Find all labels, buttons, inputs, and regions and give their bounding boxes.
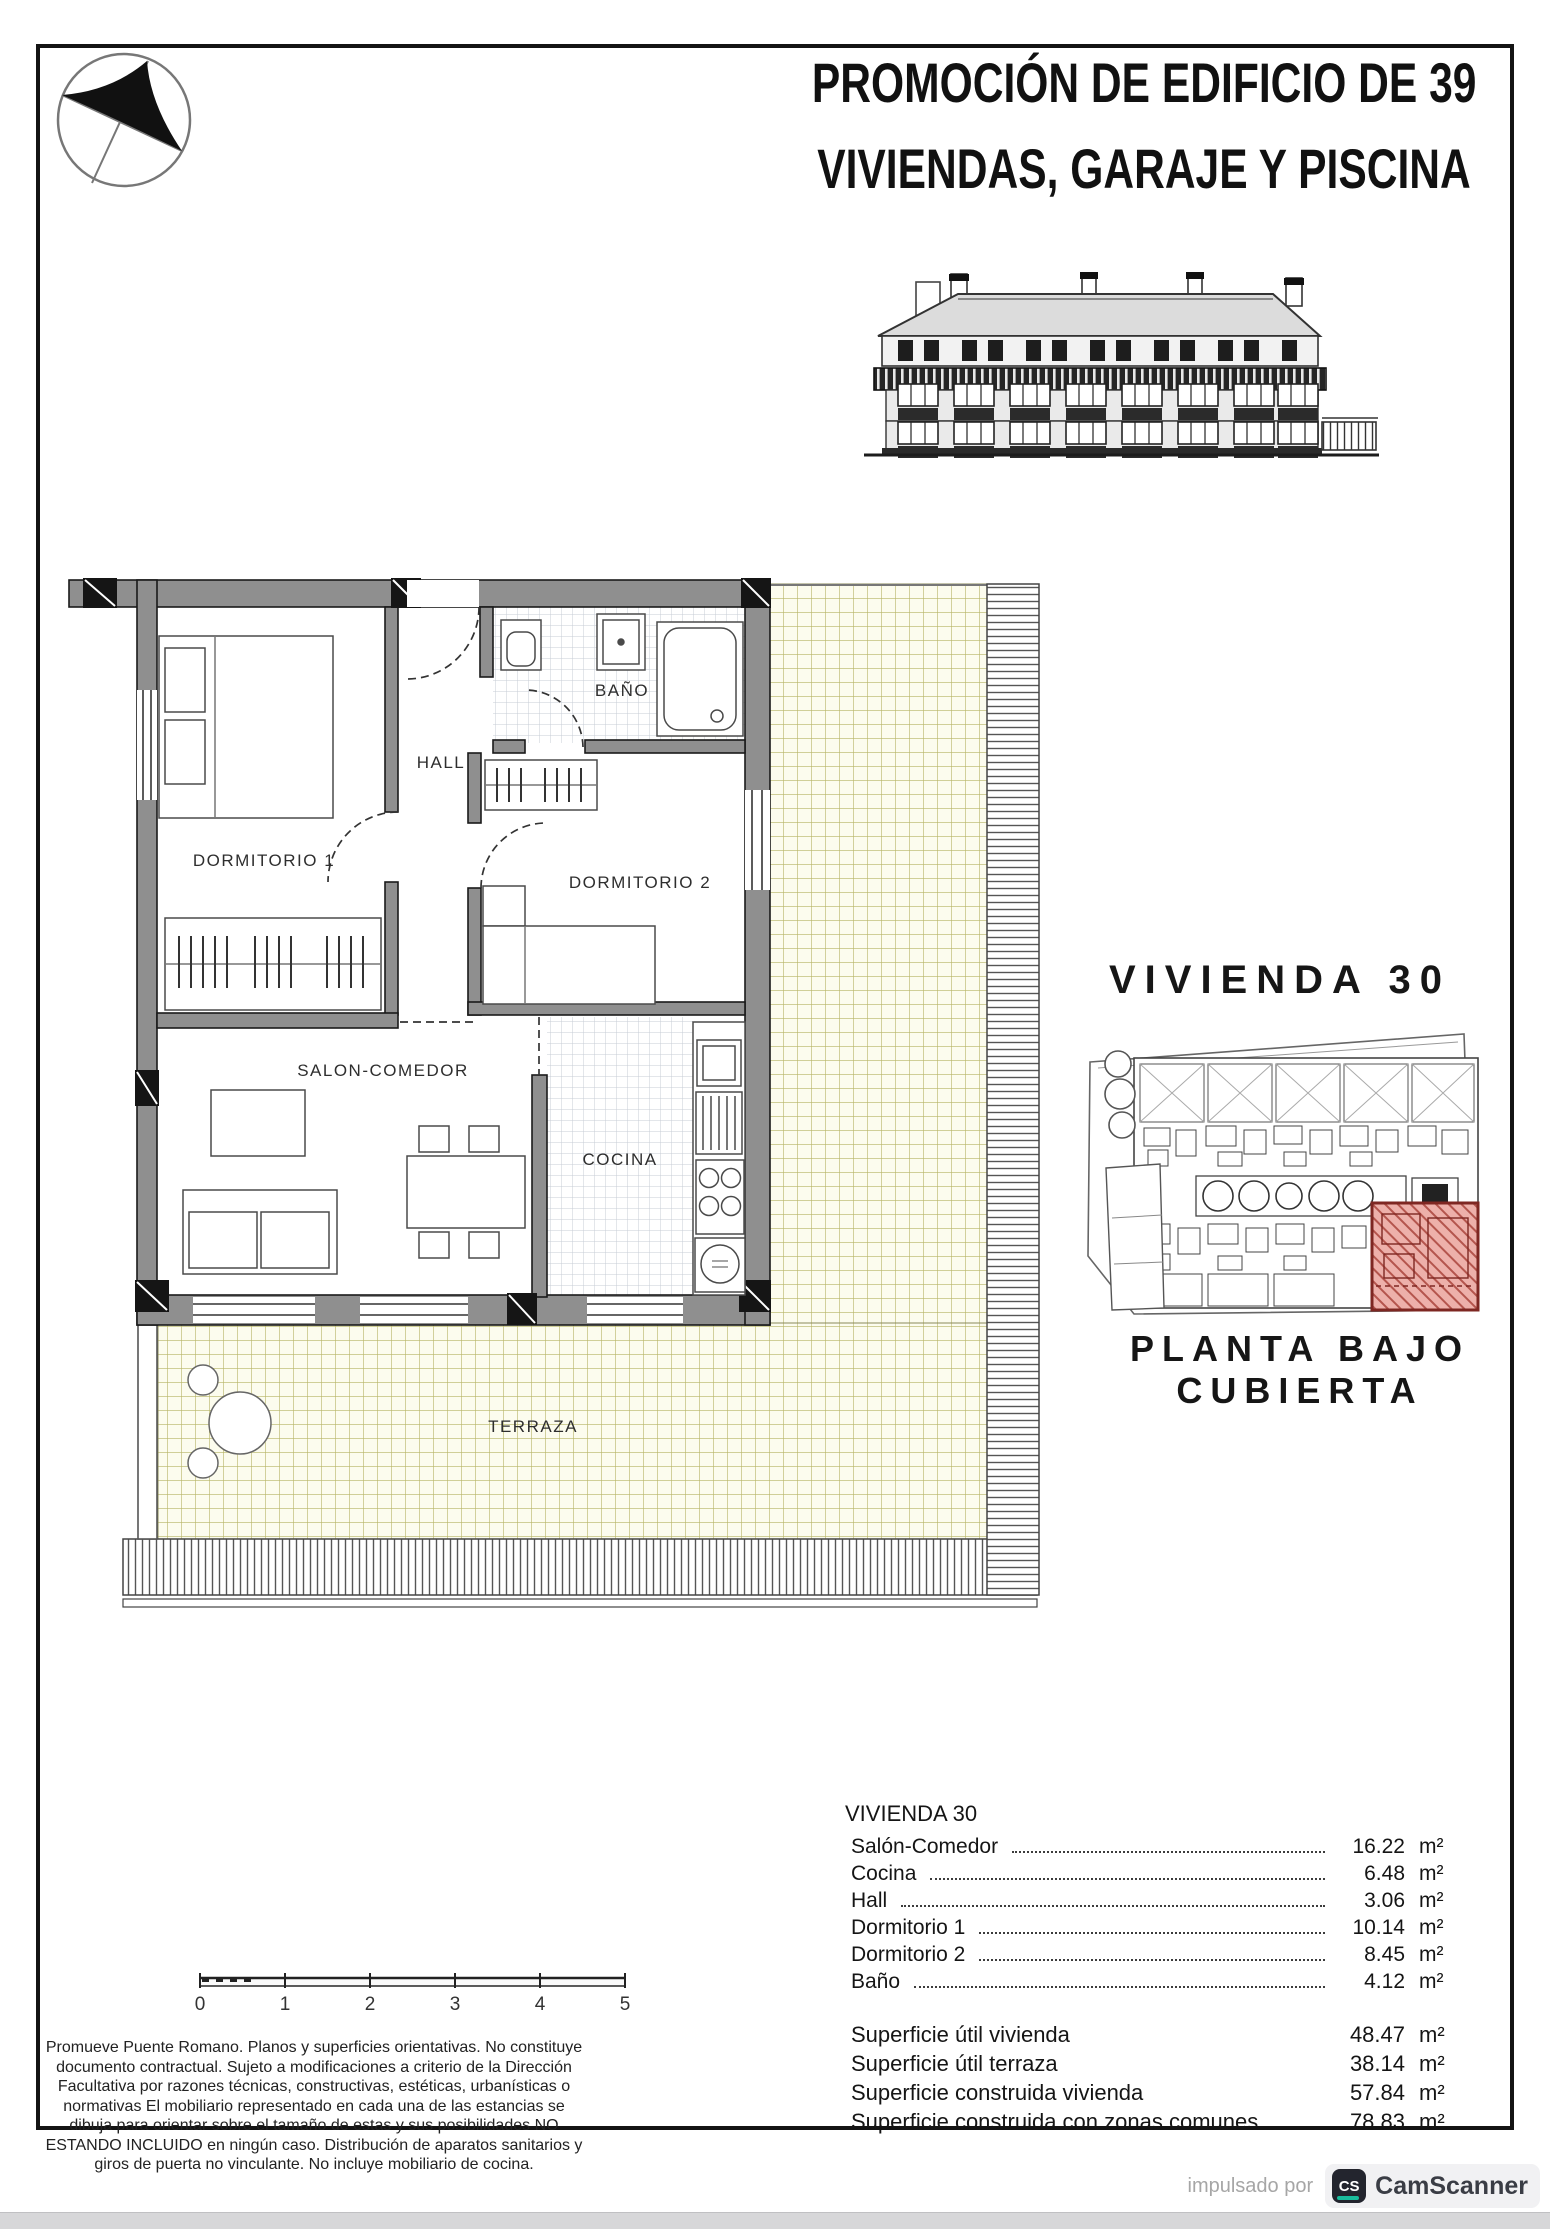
scale-tick-1: 1: [280, 1994, 291, 2015]
summary-row: Superficie útil terraza 38.14 m²: [845, 2048, 1477, 2077]
bed-double: [159, 636, 333, 818]
toilet: [501, 620, 541, 670]
label-cocina: COCINA: [582, 1150, 657, 1169]
title-line-2: VIVIENDAS, GARAJE Y PISCINA: [817, 126, 1471, 212]
table-row: Baño 4.12 m²: [845, 1968, 1477, 1995]
site-plan: [1078, 1018, 1518, 1318]
table-row: Cocina 6.48 m²: [845, 1860, 1477, 1887]
label-terraza: TERRAZA: [488, 1417, 578, 1436]
kitchen-counter: [693, 1022, 745, 1295]
terrace-parapet: [138, 1323, 157, 1539]
table-row: Dormitorio 2 8.45 m²: [845, 1941, 1477, 1968]
summary-row: Superficie útil vivienda 48.47 m²: [845, 2019, 1477, 2048]
sink: [597, 614, 645, 670]
label-dormitorio1: DORMITORIO 1: [193, 851, 335, 870]
sofa: [183, 1190, 337, 1274]
scale-tick-4: 4: [535, 1994, 546, 2015]
floor-plan: DORMITORIO 1 HALL BAÑO DORMITORIO 2 SALO…: [55, 570, 1045, 1670]
bottom-strip: [0, 2212, 1550, 2229]
table-row: Hall 3.06 m²: [845, 1887, 1477, 1914]
unit-title: VIVIENDA 30: [1080, 958, 1480, 1003]
terrace-louvre-right: [987, 584, 1039, 1595]
scale-bar: 0 1 2 3 4 5: [186, 1966, 656, 2026]
coffee-table: [211, 1090, 305, 1156]
label-bano: BAÑO: [595, 681, 649, 700]
bathtub: [657, 622, 743, 736]
scale-tick-0: 0: [195, 1994, 206, 2015]
label-hall: HALL: [417, 753, 466, 772]
scale-tick-5: 5: [620, 1994, 631, 2015]
floor-caption-line-2: CUBIERTA: [1078, 1370, 1522, 1412]
area-summary: Superficie útil vivienda 48.47 m² Superf…: [845, 2019, 1477, 2135]
summary-row: Superficie construida con zonas comunes …: [845, 2106, 1477, 2135]
closet: [485, 760, 597, 810]
watermark-prefix: impulsado por: [1188, 2175, 1314, 2198]
highlighted-unit: [1372, 1203, 1478, 1310]
building-elevation-drawing: [858, 272, 1383, 472]
table-row: Dormitorio 1 10.14 m²: [845, 1914, 1477, 1941]
camscanner-watermark: impulsado por CS CamScanner: [1150, 2162, 1540, 2210]
area-table: VIVIENDA 30 Salón-Comedor 16.22 m² Cocin…: [845, 1800, 1477, 2135]
table-row: Salón-Comedor 16.22 m²: [845, 1833, 1477, 1860]
title-line-1: PROMOCIÓN DE EDIFICIO DE 39: [812, 40, 1477, 126]
camscanner-logo-icon: CS: [1332, 2169, 1366, 2203]
scale-tick-2: 2: [365, 1994, 376, 2015]
camscanner-brand: CamScanner: [1375, 2172, 1528, 2201]
camscanner-badge: CS CamScanner: [1325, 2164, 1540, 2208]
page-title: PROMOCIÓN DE EDIFICIO DE 39 VIVIENDAS, G…: [694, 40, 1550, 212]
scale-tick-3: 3: [450, 1994, 461, 2015]
floor-caption-line-1: PLANTA BAJO: [1078, 1328, 1522, 1370]
disclaimer-text: Promueve Puente Romano. Planos y superfi…: [40, 2038, 588, 2175]
floor-caption: PLANTA BAJO CUBIERTA: [1078, 1328, 1522, 1412]
area-table-header: VIVIENDA 30: [845, 1800, 1477, 1828]
terrace-kerb: [123, 1599, 1037, 1607]
summary-row: Superficie construida vivienda 57.84 m²: [845, 2077, 1477, 2106]
terrace-louvre-bottom: [123, 1539, 1037, 1595]
label-dormitorio2: DORMITORIO 2: [569, 873, 711, 892]
wardrobe: [165, 918, 381, 1010]
label-salon: SALON-COMEDOR: [297, 1061, 469, 1080]
north-arrow-icon: [50, 46, 198, 194]
